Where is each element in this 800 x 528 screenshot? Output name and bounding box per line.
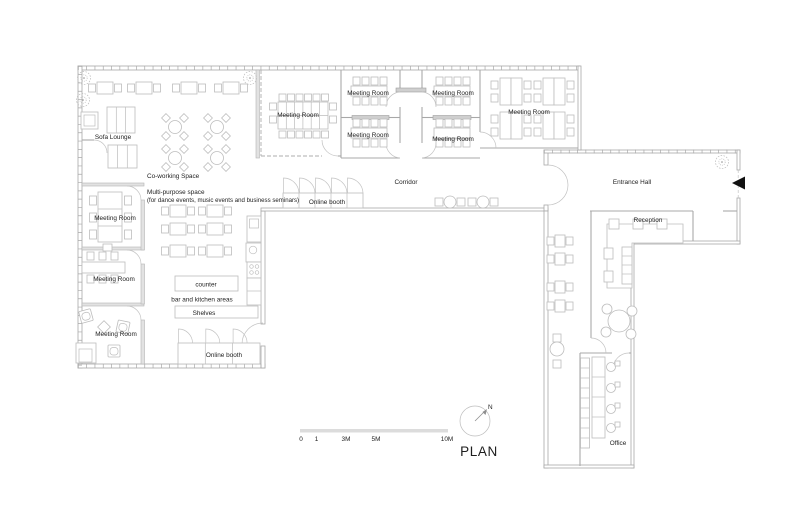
meeting-room-label: Meeting Room: [347, 132, 389, 139]
meeting-room-label: Meeting Room: [95, 331, 137, 338]
scale-label-0: 0: [299, 436, 303, 443]
meeting-room-label: Meeting Room: [277, 112, 319, 119]
plant-icon: [244, 72, 257, 85]
corridor-tables: [435, 196, 498, 208]
reception-label: Reception: [634, 217, 663, 224]
north-label: N: [488, 404, 493, 411]
coworking-round-tables: [162, 114, 231, 172]
multipurpose-tables: [162, 205, 232, 257]
scale-label-5m: 5M: [372, 436, 381, 443]
floor-plan-drawing: 0 1 3M 5M 10M N PLAN Sofa Lounge Co-work…: [0, 0, 800, 528]
meeting-room-label: Meeting Room: [93, 276, 135, 283]
multipurpose-label: Multi-purpose space: [147, 189, 205, 196]
scale-bar: 0 1 3M 5M 10M: [299, 429, 453, 443]
meeting-room-label: Meeting Room: [432, 136, 474, 143]
meeting-room-label: Meeting Room: [94, 215, 136, 222]
coworking-label: Co-working Space: [147, 173, 200, 180]
plan-title: PLAN: [460, 444, 498, 459]
lounge-strip-tables: [547, 235, 573, 368]
office-label: Office: [610, 440, 627, 447]
shelves-label: Shelves: [193, 310, 216, 317]
multipurpose-note-label: (for dance events, music events and busi…: [147, 197, 299, 204]
online-booth-label: Online booth: [206, 352, 243, 359]
counter-label: counter: [195, 282, 217, 289]
meeting-room-label: Meeting Room: [508, 109, 550, 116]
kitchen-unit: [246, 216, 261, 305]
north-indicator: N: [460, 404, 493, 436]
bar-kitchen-label: bar and kitchen areas: [171, 297, 232, 304]
floor-plan-page: 0 1 3M 5M 10M N PLAN Sofa Lounge Co-work…: [0, 0, 800, 528]
scale-label-3m: 3M: [342, 436, 351, 443]
coworking-top-tables: [89, 82, 248, 94]
meeting-room-label: Meeting Room: [432, 90, 474, 97]
scale-label-1: 1: [315, 436, 319, 443]
meeting-room-label: Meeting Room: [347, 90, 389, 97]
scale-label-10m: 10M: [441, 436, 453, 443]
corridor-label: Corridor: [394, 179, 418, 186]
reception-desk: [604, 219, 683, 288]
plant-icon: [716, 156, 729, 169]
shelves-block: [175, 306, 258, 318]
entrance-hall-label: Entrance Hall: [613, 179, 651, 186]
office-furniture: [581, 357, 621, 448]
sofa-lounge-label: Sofa Lounge: [95, 134, 132, 141]
online-booth-label: Online booth: [309, 199, 346, 206]
